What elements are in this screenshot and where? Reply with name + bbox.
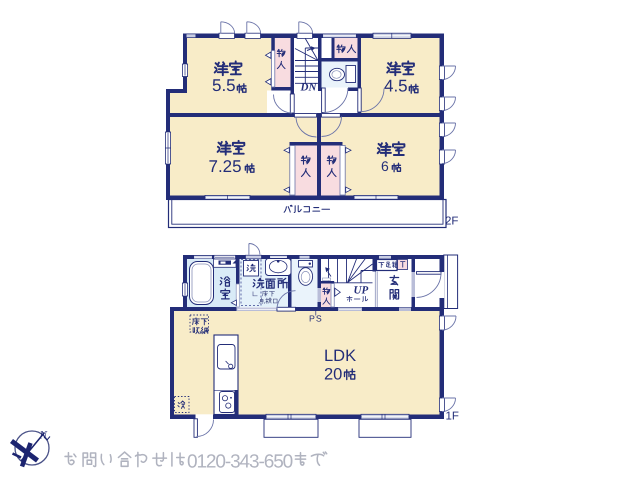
- svg-text:7.25: 7.25: [209, 157, 242, 176]
- svg-text:2F: 2F: [445, 216, 458, 228]
- svg-text:T: T: [400, 260, 406, 270]
- svg-text:1F: 1F: [446, 410, 459, 422]
- svg-text:0120-343-650: 0120-343-650: [187, 452, 293, 473]
- svg-text:5.5: 5.5: [212, 76, 236, 95]
- svg-text:PS: PS: [309, 313, 323, 323]
- svg-text:LDK: LDK: [324, 347, 356, 365]
- svg-text:4.5: 4.5: [384, 77, 408, 96]
- svg-text:UP: UP: [354, 285, 369, 297]
- svg-text:DN: DN: [300, 82, 318, 94]
- svg-text:6: 6: [381, 158, 389, 174]
- svg-text:20: 20: [324, 366, 342, 384]
